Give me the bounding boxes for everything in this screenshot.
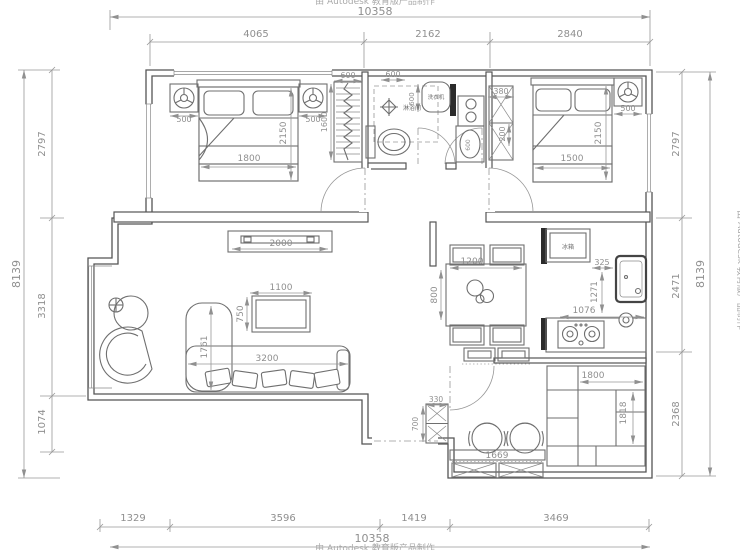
dim-shoe-rack-height: 1600 — [320, 112, 329, 132]
door-bedroom1 — [321, 168, 371, 212]
dining-area — [441, 245, 531, 364]
dim-dining-table-w: 1200 — [461, 257, 484, 267]
dim-closet2-width: 380 — [493, 87, 508, 96]
shoe-rack — [334, 82, 362, 162]
dim-top-seg-3: 2840 — [557, 29, 582, 40]
dim-bottom-seg-1: 1329 — [120, 513, 145, 524]
dim-right-seg-2: 2471 — [671, 273, 682, 298]
dim-bottom-seg-4: 3469 — [543, 513, 568, 524]
window-living-bay — [88, 266, 112, 388]
sofa — [186, 303, 350, 392]
dim-left-seg-2: 3318 — [37, 293, 48, 318]
shelving-unit — [547, 366, 645, 466]
wall-stub-bath — [450, 84, 456, 116]
dim-bed1-length: 2150 — [279, 121, 289, 144]
doors — [321, 128, 533, 446]
dim-sofa-depth: 1761 — [200, 336, 210, 359]
dim-nightstand-right: 500 — [305, 115, 320, 124]
dim-bed2-width: 1500 — [561, 154, 584, 164]
door-entry — [372, 437, 438, 446]
dim-left-seg-1: 2797 — [37, 131, 48, 156]
dim-entry-cabinet-h: 700 — [411, 417, 420, 432]
floor-plan-svg: 1035840652162284013293596141934691035881… — [0, 0, 740, 550]
dim-entry-cabinet-w: 330 — [429, 395, 444, 404]
dim-tv-cabinet: 2000 — [270, 239, 293, 249]
door-bathroom — [418, 128, 455, 164]
dim-bed1-width: 1800 — [238, 154, 261, 164]
bedroom-2 — [488, 78, 642, 182]
dining-table — [446, 264, 526, 326]
dim-right-seg-3: 2368 — [671, 401, 682, 426]
floor-lamp-icon — [109, 296, 148, 330]
gas-stove — [558, 321, 604, 348]
dim-shoe-rack-width: 600 — [340, 71, 355, 80]
dim-sofa-width: 3200 — [256, 354, 279, 364]
dim-closet2-depth: 200 — [498, 126, 507, 141]
dim-kitchen-depth: 1271 — [590, 281, 600, 303]
dim-coffee-table-d: 750 — [236, 305, 246, 322]
stool — [507, 423, 544, 453]
dim-bottom-seg-3: 1419 — [401, 513, 426, 524]
floor-drain-icon — [619, 313, 633, 327]
floor-plan: 1035840652162284013293596141934691035881… — [0, 0, 740, 550]
dim-bottom-seg-2: 3596 — [270, 513, 295, 524]
dim-kitchen-width: 1076 — [573, 306, 596, 316]
window-bedroom1-left — [144, 104, 153, 198]
label-fridge: 冰箱 — [562, 243, 574, 251]
dim-washer: 600 — [408, 92, 416, 105]
armchair — [100, 327, 152, 383]
dim-left-overall: 8139 — [10, 260, 23, 288]
dim-shelf-width: 1800 — [582, 371, 605, 381]
kitchen-sink — [616, 256, 646, 302]
dim-right-overall: 8139 — [694, 260, 707, 288]
dim-dining-table-d: 800 — [430, 286, 440, 303]
storage-room — [450, 366, 645, 477]
window-bedroom2-right — [645, 114, 653, 192]
dim-nightstand-left: 500 — [176, 115, 191, 124]
watermark-bottom: 由 Autodesk 教育版产品制作 — [315, 542, 435, 550]
dim-basin: 600 — [465, 139, 472, 151]
dim-bed2-length: 2150 — [594, 121, 604, 144]
floor-drain-icon — [380, 98, 398, 116]
door-bedroom2 — [483, 168, 533, 212]
dim-top-seg-1: 4065 — [243, 29, 268, 40]
watermark-top: 由 Autodesk 教育版产品制作 — [315, 0, 435, 7]
dim-nightstand2: 500 — [620, 104, 635, 113]
dim-counter: 1669 — [486, 451, 509, 461]
vanity — [456, 96, 484, 162]
window-bedroom1-top — [174, 69, 332, 77]
dim-kitchen-offset: 325 — [594, 258, 609, 267]
coffee-table — [247, 293, 312, 332]
dim-coffee-table-w: 1100 — [270, 283, 293, 293]
bedroom-1 — [170, 80, 362, 181]
watermark-right: 由 Autodesk 教育版产品制作 — [735, 210, 740, 330]
dim-right-seg-1: 2797 — [671, 131, 682, 156]
exterior-walls — [88, 70, 652, 478]
dim-shelf-height: 1818 — [619, 401, 629, 424]
living-room — [100, 231, 350, 392]
table-decor — [467, 280, 494, 303]
dim-left-seg-3: 1074 — [37, 409, 48, 434]
dim-bath-niche: 600 — [385, 70, 400, 79]
door-kitchen-storage — [450, 366, 494, 410]
label-washing-machine: 洗衣机 — [428, 93, 445, 101]
stool — [469, 423, 506, 453]
dim-top-seg-2: 2162 — [415, 29, 440, 40]
